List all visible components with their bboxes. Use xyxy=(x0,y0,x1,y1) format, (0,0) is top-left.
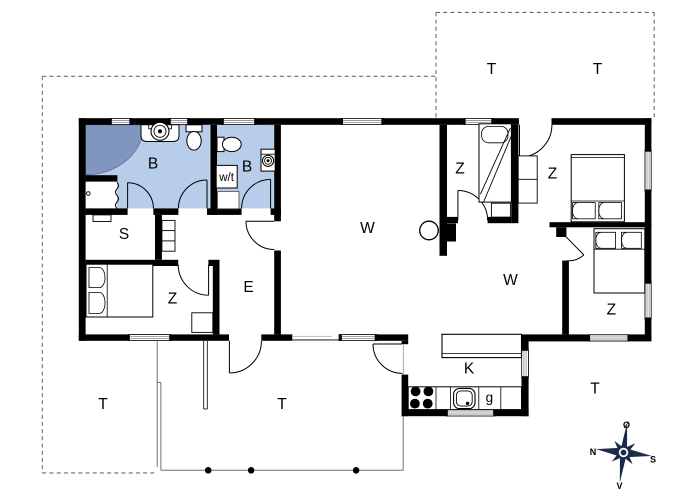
svg-text:Z: Z xyxy=(168,291,177,308)
svg-text:B: B xyxy=(242,159,252,176)
svg-text:S: S xyxy=(119,226,129,243)
svg-text:K: K xyxy=(464,360,475,377)
svg-text:Ø: Ø xyxy=(623,420,630,430)
svg-text:Z: Z xyxy=(548,166,557,183)
svg-text:Z: Z xyxy=(607,302,616,319)
svg-text:S: S xyxy=(650,455,656,465)
svg-text:E: E xyxy=(243,279,253,296)
svg-text:w/t: w/t xyxy=(218,172,235,184)
svg-text:W: W xyxy=(360,220,375,237)
svg-text:T: T xyxy=(590,381,600,398)
svg-text:T: T xyxy=(593,61,603,78)
svg-text:W: W xyxy=(503,272,518,289)
svg-text:B: B xyxy=(148,156,158,173)
svg-text:V: V xyxy=(616,481,622,491)
svg-text:g: g xyxy=(486,390,494,405)
svg-text:T: T xyxy=(277,396,287,413)
svg-text:N: N xyxy=(590,447,597,457)
svg-text:T: T xyxy=(98,396,108,413)
svg-text:T: T xyxy=(487,61,497,78)
svg-text:Z: Z xyxy=(455,161,464,178)
